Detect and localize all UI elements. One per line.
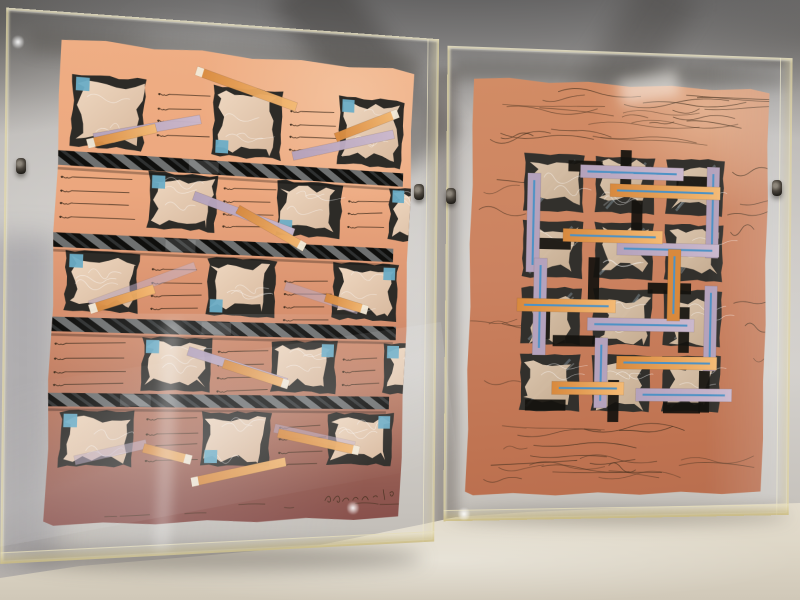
frame-clip bbox=[446, 188, 456, 204]
left-artwork-frame bbox=[0, 8, 439, 564]
left-artwork-collage bbox=[41, 36, 415, 528]
acrylic-glint bbox=[458, 506, 470, 522]
artist-signature bbox=[325, 489, 394, 502]
frame-clip bbox=[16, 158, 26, 174]
photo-scene bbox=[0, 0, 800, 600]
right-artwork-paper bbox=[464, 75, 771, 496]
right-artwork-frame bbox=[443, 46, 792, 522]
pen-scribbles bbox=[467, 84, 771, 482]
acrylic-glint bbox=[347, 500, 359, 516]
right-artwork-collage bbox=[464, 75, 771, 496]
left-artwork-paper bbox=[41, 36, 415, 528]
acrylic-glint bbox=[12, 34, 24, 50]
frame-clip bbox=[772, 180, 782, 196]
frame-clip bbox=[414, 184, 424, 200]
